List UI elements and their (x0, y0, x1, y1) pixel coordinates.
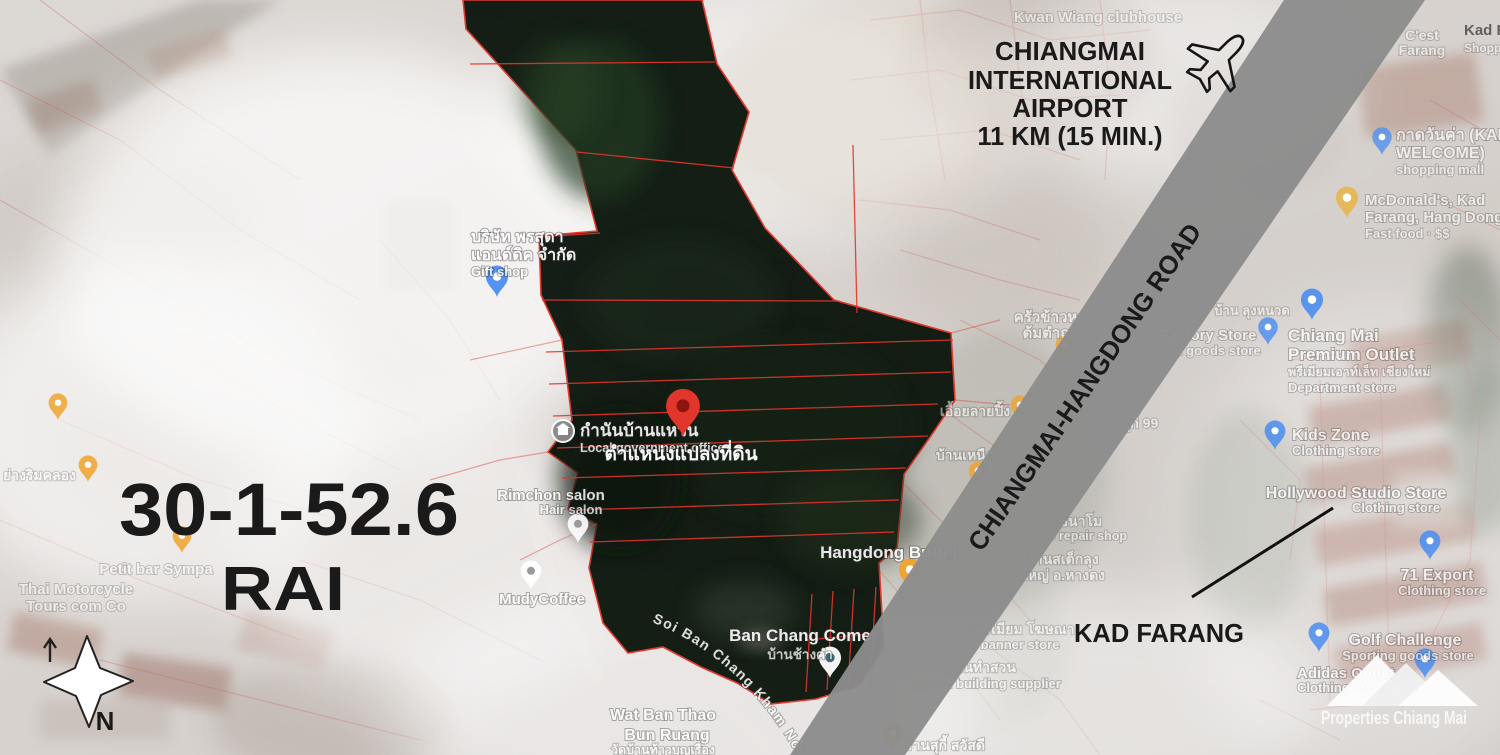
airport-line2: INTERNATIONAL (968, 65, 1172, 95)
label-aoy: เอื้อยลายปิ้ง (940, 400, 1010, 419)
label-cest-2: Farang (1399, 42, 1446, 58)
label-mcd-3: Fast food · $$ (1365, 226, 1450, 241)
label-moto-2: Tours com Co (26, 598, 126, 615)
label-moto-1: Thai Motorcycle (19, 581, 133, 598)
label-kids-1: Kids Zone (1292, 427, 1369, 444)
label-ban-chang-1: Ban Chang Come (729, 626, 871, 645)
government-office-icon (552, 420, 574, 442)
airport-line4: 11 KM (15 MIN.) (978, 121, 1163, 151)
label-export71-1: 71 Export (1401, 567, 1475, 584)
label-mcd-1: McDonald's, Kad (1365, 192, 1485, 209)
label-kids-2: Clothing store (1292, 443, 1380, 458)
plot-marker-label: ตำแหน่งแปลงที่ดิน (604, 440, 757, 465)
logo-wordmark: Properties Chiang Mai (1321, 708, 1467, 728)
label-mcd-2: Farang, Hang Dong (1365, 209, 1500, 226)
label-kad-welcome-1: กาดวันค่า (KAD (1396, 126, 1500, 144)
label-gift-shop-2: แอนด์ดิค จำกัด (471, 245, 576, 264)
label-rimchon-2: Hair salon (540, 502, 603, 517)
label-steak-2: ใหญ่ อ.หางดง (1021, 566, 1105, 584)
area-value: 30-1-52.6 (119, 468, 459, 551)
compass-north-label: N (96, 706, 115, 736)
label-outlet-4: Department store (1288, 380, 1396, 395)
airport-line3: AIRPORT (1013, 93, 1128, 123)
label-wat-2: Bun Ruang (624, 727, 709, 744)
label-cest-1: C'est (1405, 27, 1439, 43)
label-kad-welcome-2: WELCOME) (1396, 145, 1485, 162)
label-golf-1: Golf Challenge (1349, 632, 1462, 649)
label-gift-shop-3: Gift shop (471, 264, 528, 279)
label-petit-bar: Petit bar Sympa (99, 561, 213, 578)
label-gift-shop-1: บริษัท พรสุดา (471, 228, 564, 247)
label-hollywood-2: Clothing store (1352, 500, 1440, 515)
label-wat-3: วัดบ้านท้าวบุญเรือง (611, 743, 715, 755)
label-mudycoffee: MudyCoffee (499, 591, 585, 608)
label-kwan-wiang: Kwan Wiang clubhouse (1014, 9, 1182, 26)
label-banner-2: banner store (981, 637, 1060, 652)
land-ad-map: Kwan Wiang clubhouse บริษัท พรสุดา แอนด์… (0, 0, 1500, 755)
kad-farang-label: KAD FARANG (1074, 618, 1244, 648)
label-kad-fa-edge-1: Kad Fa (1464, 22, 1500, 39)
label-kad-welcome-3: shopping mall (1396, 162, 1484, 177)
label-outlet-3: พรีเมียมเอาท์เล็ท เชียงใหม่ (1288, 364, 1430, 379)
label-lung-nuat: บ้าน ลุงหนวด (1214, 303, 1290, 319)
map-scene: Kwan Wiang clubhouse บริษัท พรสุดา แอนด์… (0, 0, 1500, 755)
label-kad-fa-edge-2: Shoppin (1464, 41, 1500, 55)
airport-line1: CHIANGMAI (995, 36, 1145, 66)
label-golf-2: Sporting goods store (1342, 648, 1473, 663)
label-wat-1: Wat Ban Thao (610, 707, 716, 724)
label-ban-chang-2: บ้านช้างคำ (767, 647, 832, 662)
label-export71-2: Clothing store (1398, 583, 1486, 598)
area-unit: RAI (221, 555, 345, 624)
label-yang: ย่างริมคลอง (3, 467, 76, 483)
label-outlet-1: Chiang Mai (1288, 326, 1379, 345)
label-outlet-2: Premium Outlet (1288, 345, 1415, 364)
